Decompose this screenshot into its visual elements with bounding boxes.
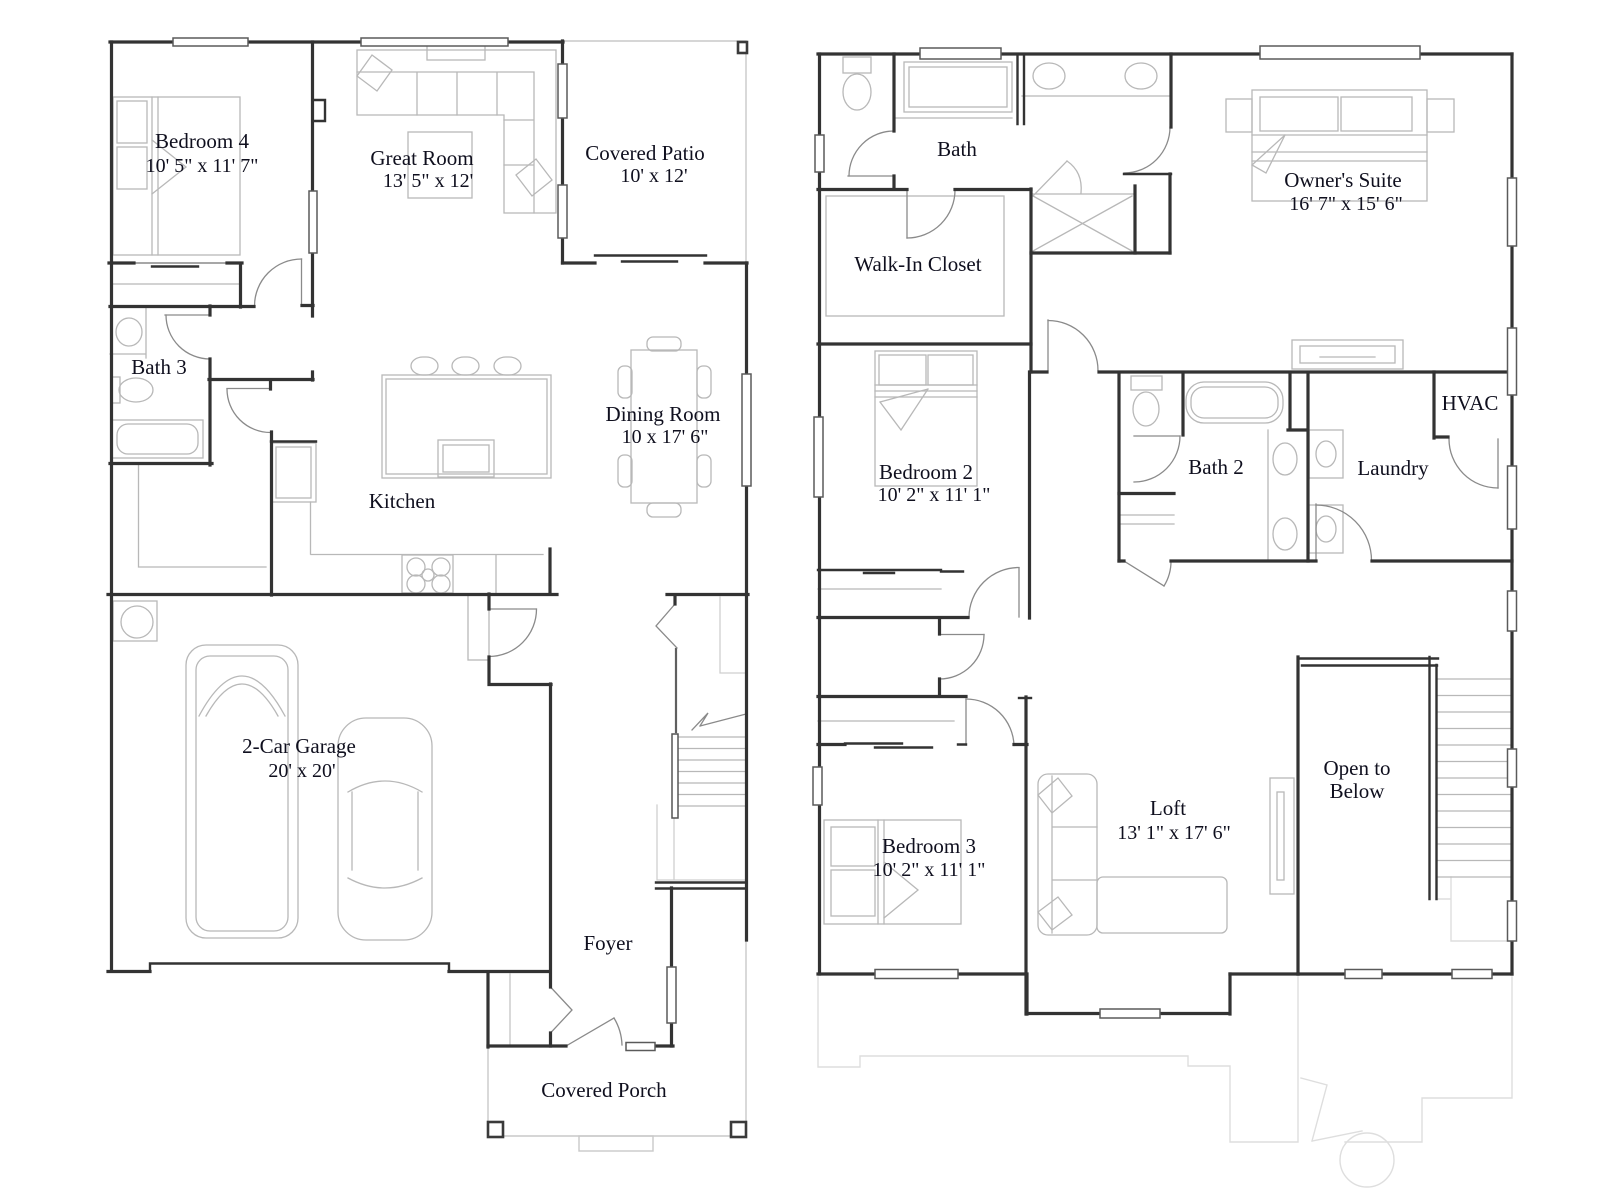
svg-text:Bedroom 4: Bedroom 4 [155,129,249,153]
svg-text:Bath: Bath [937,137,977,161]
svg-text:10' x 12': 10' x 12' [620,165,687,187]
svg-text:Covered Porch: Covered Porch [541,1078,667,1102]
svg-text:20' x 20': 20' x 20' [268,760,335,782]
svg-text:Bath 2: Bath 2 [1188,455,1243,479]
svg-text:Open to: Open to [1323,756,1390,780]
svg-text:13' 1" x 17' 6": 13' 1" x 17' 6" [1117,822,1231,844]
svg-text:2-Car Garage: 2-Car Garage [242,734,356,758]
svg-text:Owner's Suite: Owner's Suite [1284,168,1402,192]
svg-text:HVAC: HVAC [1442,391,1499,415]
svg-text:Covered Patio: Covered Patio [585,141,705,165]
svg-text:Dining Room: Dining Room [606,402,721,426]
svg-text:10' 2" x 11' 1": 10' 2" x 11' 1" [873,859,986,881]
svg-text:Bedroom 3: Bedroom 3 [882,834,976,858]
svg-text:Loft: Loft [1150,796,1186,820]
svg-text:Great Room: Great Room [370,146,473,170]
svg-text:Below: Below [1330,779,1386,803]
svg-text:Walk-In Closet: Walk-In Closet [854,252,981,276]
svg-text:10 x 17' 6": 10 x 17' 6" [622,426,709,448]
svg-text:Foyer: Foyer [584,931,633,955]
svg-text:10' 2" x 11' 1": 10' 2" x 11' 1" [878,484,991,506]
svg-text:Bath 3: Bath 3 [131,355,186,379]
svg-text:16' 7" x 15' 6": 16' 7" x 15' 6" [1289,193,1403,215]
svg-text:Laundry: Laundry [1357,456,1429,480]
svg-text:Kitchen: Kitchen [369,489,436,513]
svg-text:10' 5" x 11' 7": 10' 5" x 11' 7" [146,155,259,177]
svg-text:13' 5" x 12': 13' 5" x 12' [383,170,473,192]
svg-text:Bedroom 2: Bedroom 2 [879,460,973,484]
